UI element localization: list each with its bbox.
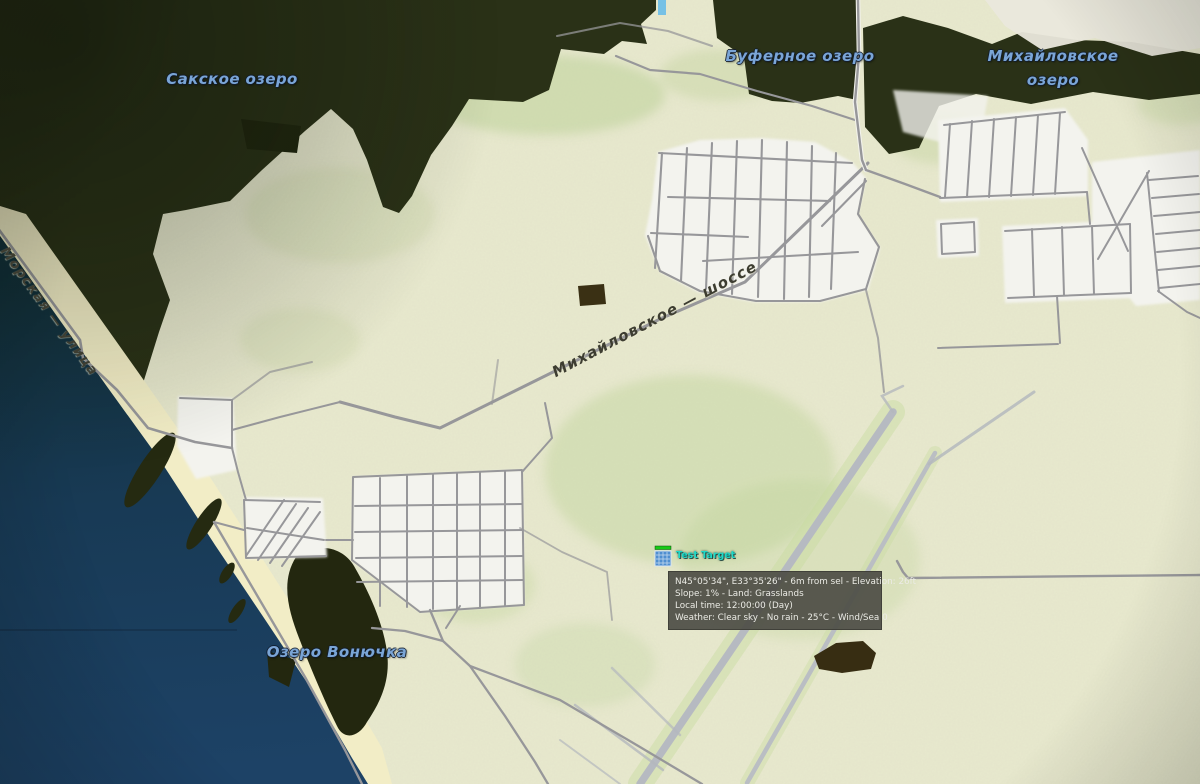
map-canvas — [0, 0, 1200, 784]
vignette — [0, 0, 1200, 784]
map-viewport[interactable]: Сакское озеро Буферное озеро Михайловско… — [0, 0, 1200, 784]
